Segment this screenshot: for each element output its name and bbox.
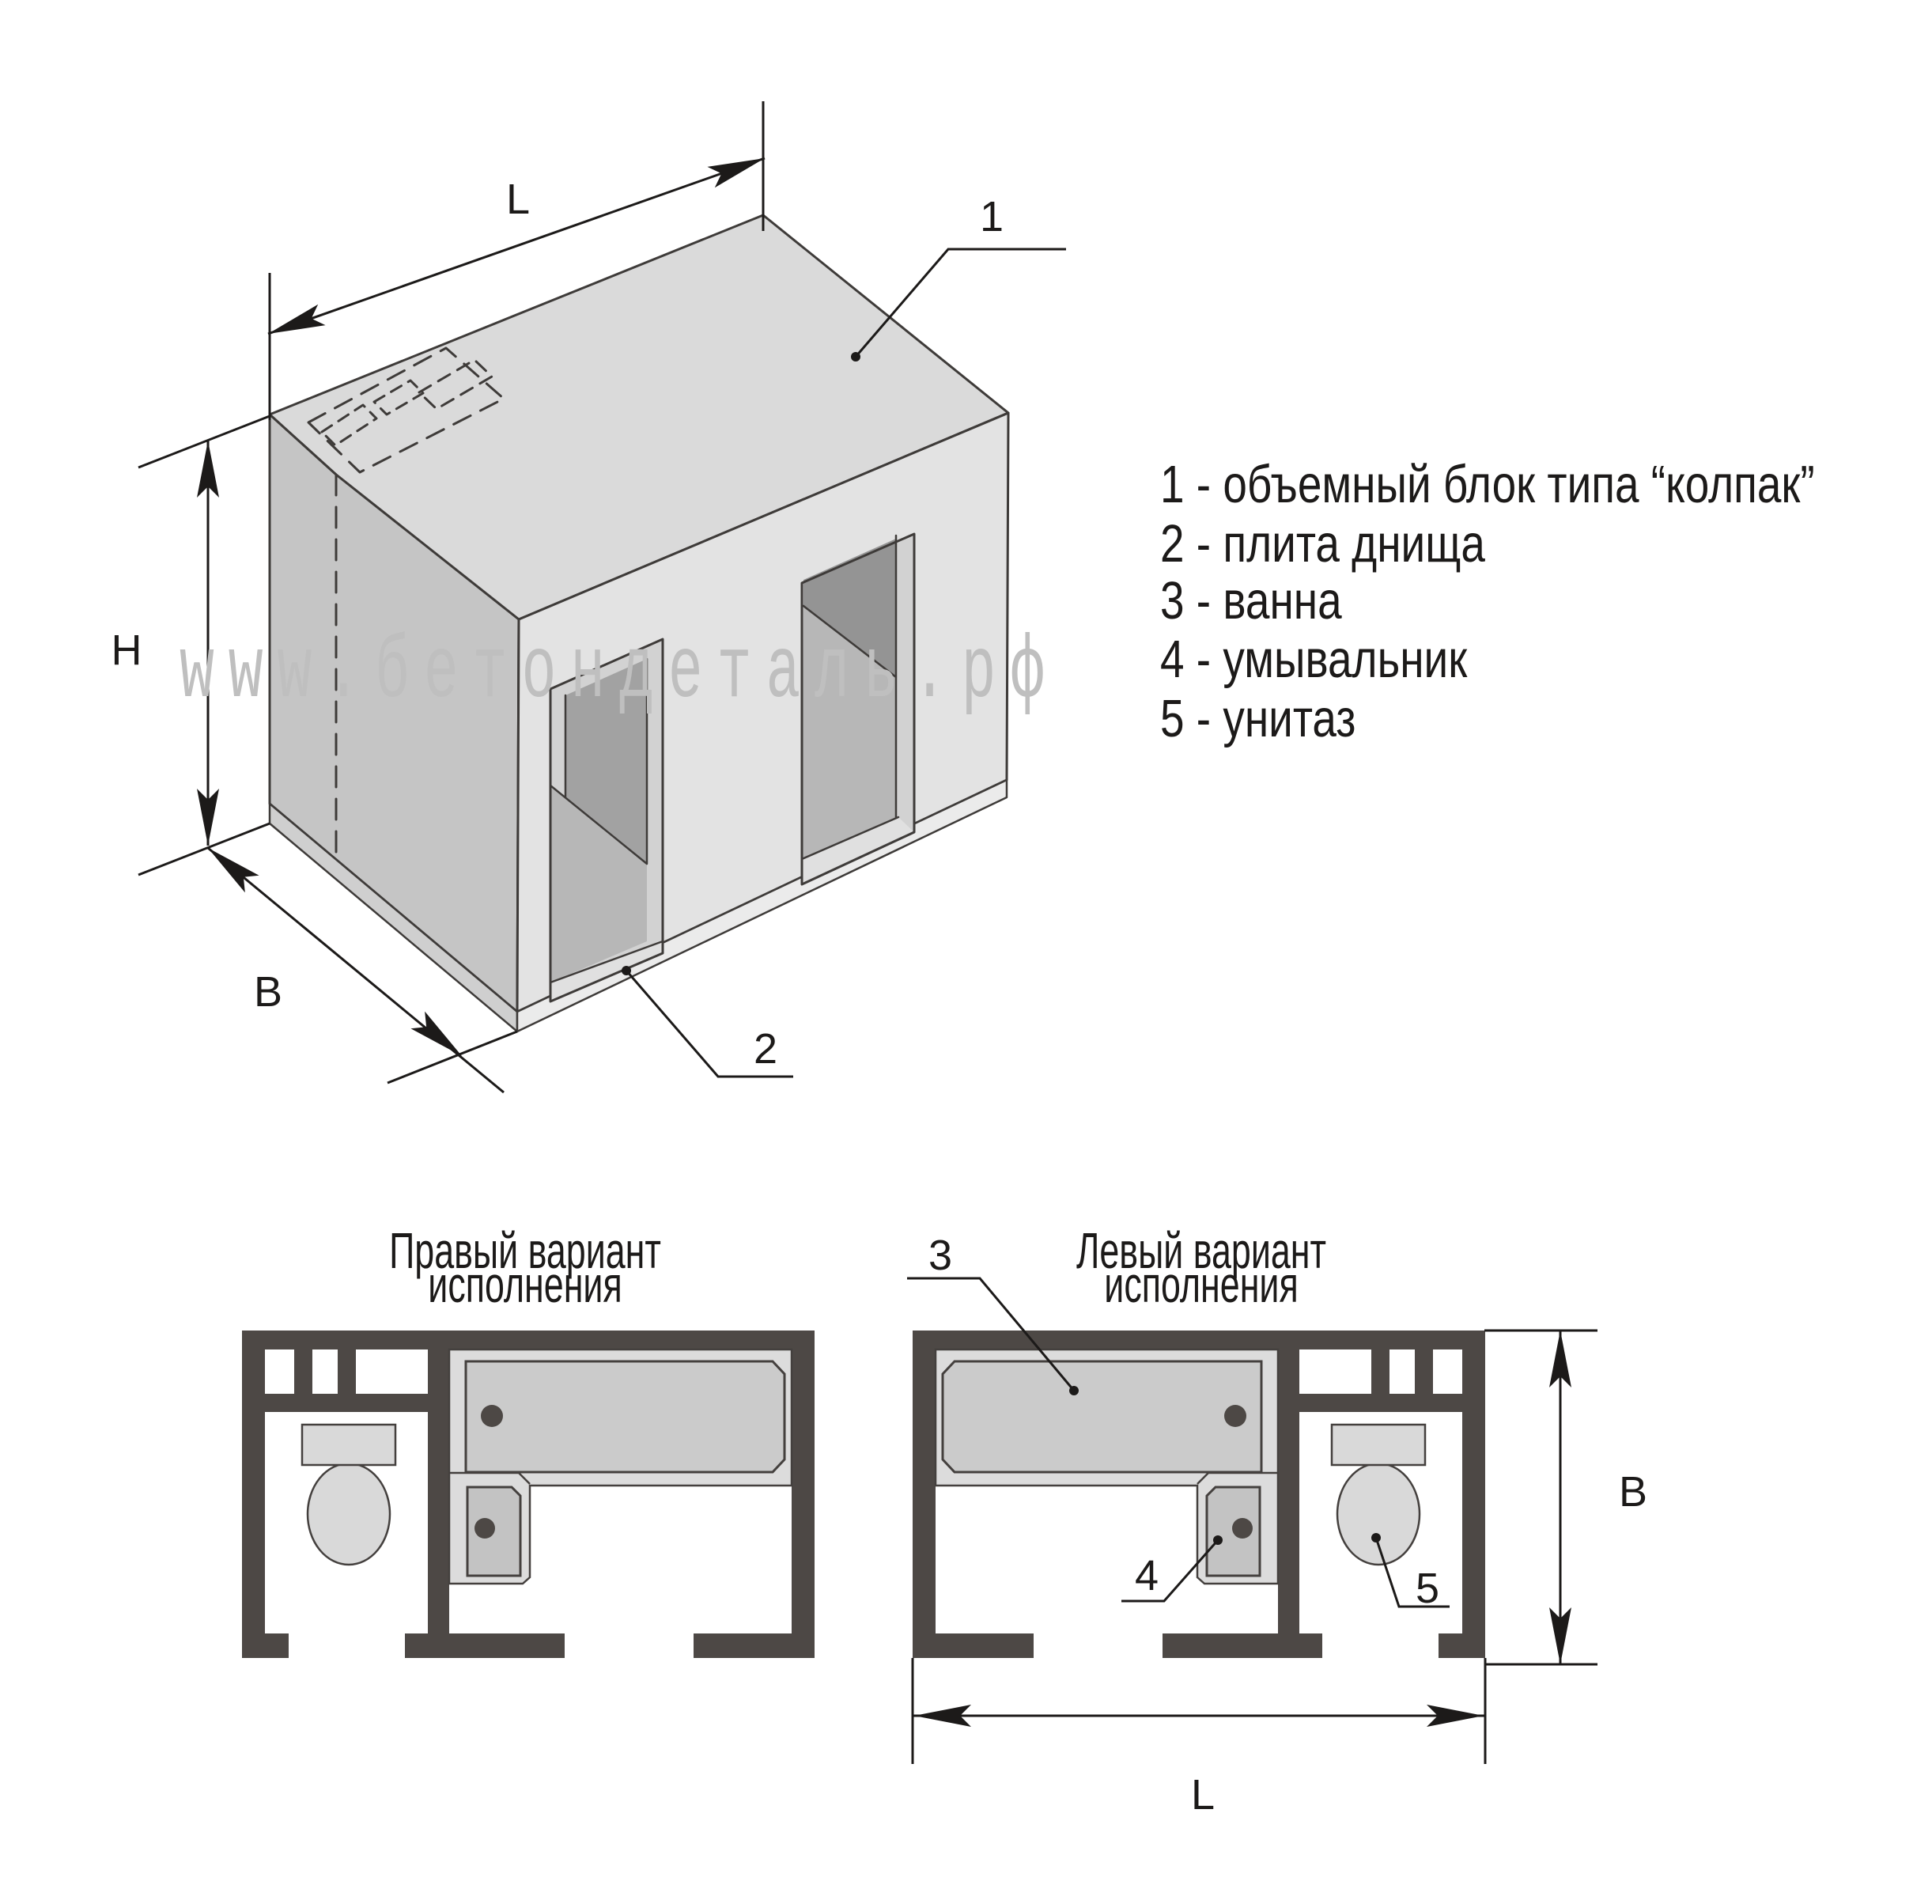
svg-text:3 - ванна: 3 - ванна bbox=[1160, 571, 1343, 630]
svg-text:5 - унитаз: 5 - унитаз bbox=[1160, 689, 1355, 748]
svg-text:В: В bbox=[1619, 1468, 1647, 1516]
svg-text:2 - плита днища: 2 - плита днища bbox=[1160, 514, 1486, 573]
svg-text:L: L bbox=[506, 176, 530, 223]
svg-text:5: 5 bbox=[1416, 1565, 1439, 1612]
svg-text:4 - умывальник: 4 - умывальник bbox=[1160, 630, 1468, 688]
svg-text:www.бетондеталь.рф: www.бетондеталь.рф bbox=[180, 624, 1059, 723]
svg-text:исполнения: исполнения bbox=[428, 1256, 622, 1313]
svg-text:2: 2 bbox=[754, 1025, 777, 1073]
svg-text:4: 4 bbox=[1135, 1552, 1159, 1599]
svg-text:исполнения: исполнения bbox=[1104, 1256, 1298, 1313]
svg-text:3: 3 bbox=[928, 1232, 952, 1279]
svg-text:L: L bbox=[1191, 1771, 1215, 1819]
svg-text:1: 1 bbox=[980, 193, 1004, 240]
svg-text:H: H bbox=[112, 626, 142, 674]
svg-text:B: B bbox=[254, 968, 282, 1016]
svg-text:1 - объемный блок типа “колпак: 1 - объемный блок типа “колпак” bbox=[1160, 455, 1815, 513]
